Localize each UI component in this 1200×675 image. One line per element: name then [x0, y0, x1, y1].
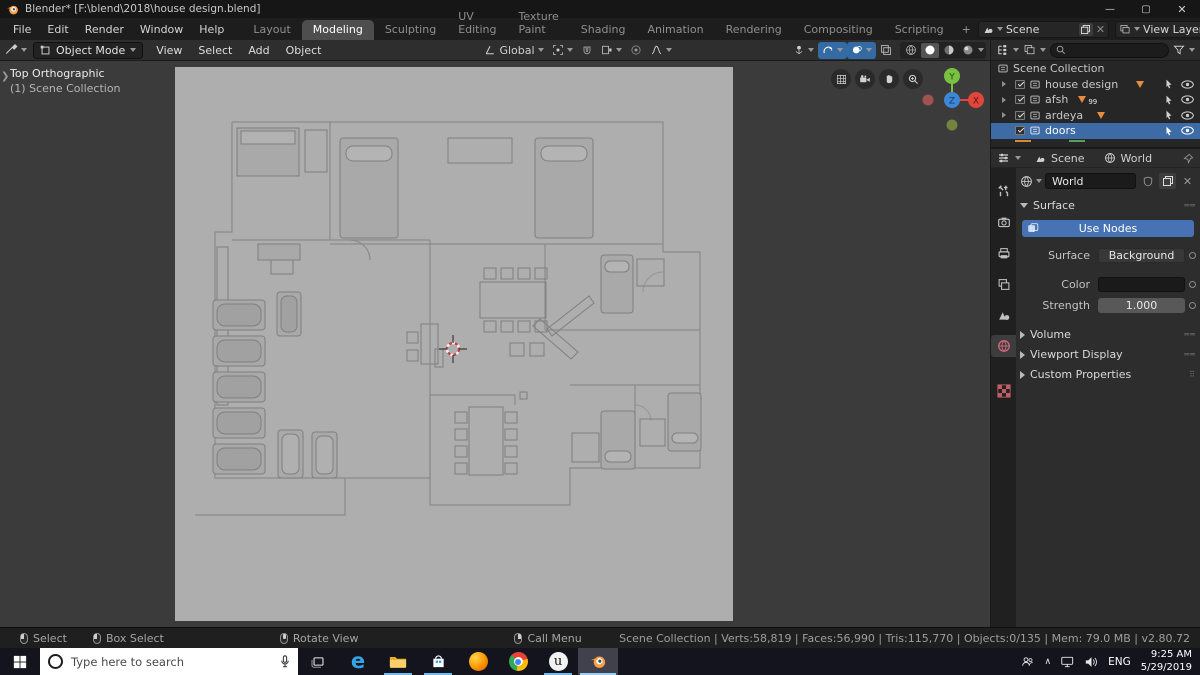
microsoft-store-icon: [431, 654, 446, 669]
copy-datablock-icon[interactable]: [1159, 173, 1176, 189]
hint-label: Call Menu: [527, 632, 581, 645]
firefox-icon: [469, 652, 488, 671]
hint-label: Select: [33, 632, 67, 645]
tab-shading[interactable]: Shading: [570, 20, 637, 40]
use-nodes-button[interactable]: Use Nodes: [1022, 220, 1194, 237]
tab-uv-editing[interactable]: UV Editing: [447, 7, 507, 40]
tab-output[interactable]: [991, 242, 1016, 264]
maximize-button[interactable]: ▢: [1128, 0, 1164, 18]
floor-plan-wireframe: [175, 67, 733, 621]
chevron-down-icon: [538, 48, 544, 52]
visibility-eye-icon[interactable]: [1181, 126, 1194, 135]
surface-section-header[interactable]: Surface ══: [1020, 197, 1196, 214]
collection-icon: [1029, 110, 1041, 121]
windows-taskbar: Type here to search e u ∧ ENG 9:25 AM 5/…: [0, 648, 1200, 675]
orientation-label: Global: [499, 44, 534, 57]
tab-modeling[interactable]: Modeling: [302, 20, 374, 40]
minimize-button[interactable]: —: [1092, 0, 1128, 18]
chevron-down-icon: [567, 48, 573, 52]
section-label: Custom Properties: [1030, 368, 1131, 381]
outliner-row-doors[interactable]: doors: [991, 123, 1200, 139]
view-layer-name: View Layer: [1143, 23, 1200, 36]
hint-rotate-view: Rotate View: [280, 632, 359, 645]
display-mode-icon[interactable]: [1023, 44, 1036, 56]
scene-selector[interactable]: Scene ✕: [978, 21, 1109, 38]
visibility-eye-icon[interactable]: [1181, 95, 1194, 104]
animate-dot-icon[interactable]: [1189, 281, 1196, 288]
custom-properties-section-header[interactable]: Custom Properties ⠿: [1020, 366, 1196, 383]
tab-compositing[interactable]: Compositing: [793, 20, 884, 40]
chevron-down-icon: [837, 48, 843, 52]
menu-object[interactable]: Object: [279, 44, 329, 57]
svg-text:X: X: [973, 97, 979, 107]
expand-icon: [1020, 351, 1025, 359]
chevron-down-icon: [666, 48, 672, 52]
left-mouse-icon: [20, 633, 28, 644]
mode-label: Object Mode: [56, 44, 125, 57]
outliner-label: ardeya: [1045, 109, 1083, 122]
overlays-icon: [822, 44, 834, 56]
rendered-shading-button[interactable]: [959, 43, 977, 58]
properties-panel: Scene World World ✕: [990, 147, 1200, 627]
unlink-scene-icon[interactable]: ✕: [1096, 23, 1105, 36]
object-mode-icon: [40, 45, 51, 56]
tray-expand-chevron-icon[interactable]: ∧: [1044, 657, 1051, 667]
collection-icon: [997, 63, 1009, 74]
taskbar-clock[interactable]: 9:25 AM 5/29/2019: [1141, 649, 1192, 674]
tab-animation[interactable]: Animation: [636, 20, 714, 40]
tab-tool[interactable]: [991, 180, 1016, 202]
hint-box-select: Box Select: [93, 632, 164, 645]
world-icon: [1104, 152, 1116, 164]
menu-window[interactable]: Window: [132, 23, 191, 36]
task-view-icon: [311, 655, 326, 668]
hint-call-menu: Call Menu: [514, 632, 581, 645]
chevron-down-icon: [1015, 156, 1021, 160]
windows-logo-icon: [13, 655, 27, 669]
scene-statistics: Scene Collection | Verts:58,819 | Faces:…: [619, 632, 1200, 645]
scene-icon: [982, 24, 994, 35]
view-name-label: Top Orthographic: [10, 67, 105, 80]
scene-icon: [1034, 153, 1046, 164]
toggle-xray-button[interactable]: [876, 42, 896, 59]
selectable-pointer-icon[interactable]: [1164, 126, 1174, 136]
grid-ortho-button[interactable]: [831, 69, 851, 89]
taskbar-firefox[interactable]: [458, 648, 498, 675]
active-collection-label: (1) Scene Collection: [10, 82, 121, 95]
fake-user-shield-icon[interactable]: [1139, 173, 1156, 189]
top-menu-bar: File Edit Render Window Help Layout Mode…: [0, 18, 1200, 40]
material-shading-button[interactable]: [940, 43, 958, 58]
tab-texture-paint[interactable]: Texture Paint: [508, 7, 570, 40]
pivot-icon: [552, 44, 564, 56]
tab-view-layer[interactable]: [991, 273, 1016, 295]
properties-breadcrumb: Scene World: [991, 149, 1200, 168]
chevron-down-icon: [1134, 27, 1140, 31]
add-workspace-button[interactable]: +: [955, 20, 978, 40]
tab-sculpting[interactable]: Sculpting: [374, 20, 447, 40]
outliner-label: house design: [1045, 78, 1118, 91]
snap-toggle[interactable]: [577, 42, 597, 59]
pivot-point-dropdown[interactable]: [548, 42, 577, 59]
section-menu-icon[interactable]: ══: [1184, 201, 1196, 210]
pan-view-button[interactable]: [879, 69, 899, 89]
show-gizmo-dropdown[interactable]: [789, 42, 818, 59]
mode-dropdown[interactable]: Object Mode: [33, 42, 143, 59]
surface-type-dropdown[interactable]: Background: [1098, 248, 1185, 263]
outliner-header: [990, 40, 1200, 61]
speaker-icon[interactable]: [1085, 656, 1098, 668]
new-scene-icon[interactable]: [1079, 23, 1093, 36]
checkbox-icon[interactable]: [1015, 80, 1025, 89]
status-bar: Select Box Select Rotate View Call Menu …: [0, 627, 1200, 648]
checkbox-icon[interactable]: [1015, 126, 1025, 135]
hint-label: Rotate View: [293, 632, 359, 645]
strength-field-row: Strength 1.000: [1020, 297, 1196, 314]
animate-dot-icon[interactable]: [1189, 252, 1196, 259]
taskbar-blender[interactable]: [578, 648, 618, 675]
ground-plane: [175, 67, 733, 621]
collection-icon: [1029, 79, 1041, 90]
taskbar-edge[interactable]: e: [338, 648, 378, 675]
section-menu-icon[interactable]: ══: [1184, 350, 1196, 359]
middle-mouse-icon: [280, 633, 288, 644]
blender-taskbar-icon: [588, 653, 608, 670]
object-data-icon: [1097, 112, 1105, 119]
viewport-3d[interactable]: Top Orthographic (1) Scene Collection ❯ …: [0, 61, 990, 627]
edge-icon: e: [351, 651, 365, 672]
outliner-row-scene-collection[interactable]: Scene Collection: [991, 61, 1200, 77]
proportional-editing-icon: [630, 44, 642, 56]
filter-icon[interactable]: [1173, 44, 1185, 56]
outliner-row-afsh[interactable]: afsh 99: [991, 92, 1200, 108]
microphone-icon[interactable]: [280, 655, 290, 668]
svg-text:Y: Y: [948, 73, 955, 83]
clock-date: 5/29/2019: [1141, 662, 1192, 675]
pin-icon[interactable]: [1183, 153, 1194, 164]
tab-scene[interactable]: [991, 304, 1016, 326]
solid-shading-button[interactable]: [921, 43, 939, 58]
breadcrumb-world[interactable]: World: [1121, 152, 1153, 165]
workspace-tabs: Layout Modeling Sculpting UV Editing Tex…: [242, 18, 977, 40]
clock-time: 9:25 AM: [1141, 649, 1192, 662]
chevron-down-icon: [1013, 48, 1019, 52]
tab-render[interactable]: [991, 211, 1016, 233]
outliner-row-house-design[interactable]: house design: [991, 77, 1200, 93]
chevron-down-icon: [808, 48, 814, 52]
tab-scripting[interactable]: Scripting: [884, 20, 955, 40]
volume-section-header[interactable]: Volume ══: [1020, 326, 1196, 343]
menu-help[interactable]: Help: [191, 23, 232, 36]
menu-file[interactable]: File: [5, 23, 39, 36]
desktop: { "window": { "title": "Blender* [F:\\bl…: [0, 0, 1200, 675]
section-label: Viewport Display: [1030, 348, 1123, 361]
close-button[interactable]: ✕: [1164, 0, 1200, 18]
section-label: Volume: [1030, 328, 1071, 341]
expand-icon[interactable]: [1002, 112, 1006, 118]
hint-select: Select: [20, 632, 67, 645]
properties-body: World ✕ Surface ══ Use Nodes Surface Bac…: [1016, 168, 1200, 629]
task-view-button[interactable]: [298, 648, 338, 675]
object-count: 99: [1088, 98, 1097, 106]
falloff-curve-icon: [650, 44, 663, 56]
checkbox-icon[interactable]: [1015, 95, 1025, 104]
unlink-datablock-icon[interactable]: ✕: [1179, 173, 1196, 189]
cortana-icon: [48, 654, 63, 669]
camera-view-button[interactable]: [855, 69, 875, 89]
chevron-down-icon: [616, 48, 622, 52]
tab-texture[interactable]: [991, 380, 1016, 402]
animate-dot-icon[interactable]: [1189, 302, 1196, 309]
tab-rendering[interactable]: Rendering: [715, 20, 793, 40]
toolbar-expand-icon[interactable]: ❯: [1, 71, 9, 82]
selectable-pointer-icon[interactable]: [1164, 79, 1174, 89]
field-label: Surface: [1020, 249, 1098, 262]
main-area: Top Orthographic (1) Scene Collection ❯ …: [0, 61, 1200, 627]
wireframe-shading-button[interactable]: [902, 43, 920, 58]
start-button[interactable]: [0, 648, 40, 675]
search-icon: [1056, 45, 1066, 55]
view-layer-selector[interactable]: View Layer ✕: [1115, 21, 1200, 38]
chevron-down-icon: [1040, 48, 1046, 52]
viewport-display-section-header[interactable]: Viewport Display ══: [1020, 346, 1196, 363]
outliner-row-ardeya[interactable]: ardeya: [991, 108, 1200, 124]
show-overlays-toggle[interactable]: [818, 42, 847, 59]
expand-icon: [1020, 331, 1025, 339]
xray-toggle[interactable]: [847, 42, 876, 59]
menu-add[interactable]: Add: [241, 44, 276, 57]
outliner-editor-icon[interactable]: [996, 44, 1009, 56]
snap-increment-icon: [601, 44, 613, 56]
tab-layout[interactable]: Layout: [242, 20, 301, 40]
proportional-editing-toggle[interactable]: [626, 42, 646, 59]
color-field-row: Color: [1020, 276, 1196, 293]
outliner-label: afsh: [1045, 93, 1068, 106]
svg-text:Z: Z: [949, 97, 955, 107]
window-title: Blender* [F:\blend\2018\house design.ble…: [25, 3, 260, 15]
menu-view[interactable]: View: [149, 44, 189, 57]
selectable-pointer-icon[interactable]: [1164, 95, 1174, 105]
outliner-panel: Scene Collection house design afsh 99: [990, 61, 1200, 147]
chevron-down-icon: [130, 48, 136, 52]
hint-label: Box Select: [106, 632, 164, 645]
right-mouse-icon: [514, 633, 522, 644]
proportional-falloff-dropdown[interactable]: [646, 42, 676, 59]
chevron-down-icon: [866, 48, 872, 52]
expand-icon: [1020, 371, 1025, 379]
scene-name: Scene: [1006, 23, 1076, 36]
taskbar-search[interactable]: Type here to search: [40, 648, 298, 675]
chevron-down-icon: [1036, 179, 1042, 183]
breadcrumb-scene[interactable]: Scene: [1051, 152, 1085, 165]
properties-tab-column: [991, 168, 1016, 629]
visibility-eye-icon[interactable]: [1181, 111, 1194, 120]
visibility-eye-icon[interactable]: [1181, 80, 1194, 89]
search-placeholder: Type here to search: [71, 655, 272, 669]
chevron-down-icon: [21, 48, 27, 52]
system-tray: ∧ ENG 9:25 AM 5/29/2019: [1021, 648, 1200, 675]
object-data-icon: [1136, 81, 1144, 88]
chrome-icon: [509, 652, 528, 671]
collection-icon: [1029, 125, 1041, 136]
unreal-engine-icon: u: [549, 652, 568, 671]
taskbar-chrome[interactable]: [498, 648, 538, 675]
network-icon[interactable]: [1061, 656, 1075, 668]
field-label: Color: [1020, 278, 1098, 291]
outliner-partial-row: [991, 139, 1200, 143]
xray-squares-icon: [880, 44, 892, 56]
expand-icon[interactable]: [1002, 81, 1006, 87]
menu-select[interactable]: Select: [191, 44, 239, 57]
strength-input[interactable]: 1.000: [1098, 298, 1185, 313]
properties-editor-icon[interactable]: [997, 152, 1010, 164]
world-name-field[interactable]: World: [1045, 173, 1136, 189]
field-label: Strength: [1020, 299, 1098, 312]
section-menu-icon[interactable]: ⠿: [1189, 370, 1196, 379]
orientation-axes-icon: [484, 44, 496, 56]
gizmo-icon: [793, 44, 805, 56]
collapse-icon: [1020, 203, 1028, 208]
object-data-icon: [1078, 96, 1086, 103]
section-menu-icon[interactable]: ══: [1184, 330, 1196, 339]
color-swatch[interactable]: [1098, 277, 1185, 292]
collection-icon: [1029, 94, 1041, 105]
world-icon[interactable]: [1020, 175, 1033, 188]
snap-target-dropdown[interactable]: [597, 42, 626, 59]
taskbar-file-explorer[interactable]: [378, 648, 418, 675]
menu-edit[interactable]: Edit: [39, 23, 76, 36]
people-icon[interactable]: [1021, 656, 1034, 668]
left-mouse-drag-icon: [93, 633, 101, 644]
tab-world[interactable]: [991, 335, 1016, 357]
title-bar: Blender* [F:\blend\2018\house design.ble…: [0, 0, 1200, 18]
outliner-search-input[interactable]: [1050, 43, 1169, 58]
editor-type-icon[interactable]: [4, 43, 19, 57]
taskbar-store[interactable]: [418, 648, 458, 675]
xray-icon: [851, 44, 863, 56]
surface-field-row: Surface Background: [1020, 247, 1196, 264]
viewport-header: Object Mode View Select Add Object Globa…: [0, 40, 990, 61]
chevron-down-icon: [978, 48, 984, 52]
selectable-pointer-icon[interactable]: [1164, 110, 1174, 120]
chevron-down-icon: [997, 27, 1003, 31]
navigation-gizmo[interactable]: Y Z X: [920, 63, 986, 133]
expand-icon[interactable]: [1002, 97, 1006, 103]
section-label: Surface: [1033, 199, 1075, 212]
view-layer-icon: [1119, 24, 1131, 35]
outliner-label: Scene Collection: [1013, 62, 1104, 75]
nodes-icon: [1027, 223, 1039, 234]
use-nodes-label: Use Nodes: [1079, 222, 1138, 235]
language-indicator[interactable]: ENG: [1108, 656, 1131, 668]
magnet-icon: [581, 44, 593, 56]
checkbox-icon[interactable]: [1015, 111, 1025, 120]
blender-app-icon: [6, 3, 19, 16]
transform-orientation-dropdown[interactable]: Global: [480, 42, 547, 59]
outliner-label: doors: [1045, 124, 1076, 137]
taskbar-unreal[interactable]: u: [538, 648, 578, 675]
menu-render[interactable]: Render: [77, 23, 132, 36]
file-explorer-icon: [389, 654, 407, 669]
shading-mode-group: [900, 42, 986, 59]
chevron-down-icon: [1189, 48, 1195, 52]
